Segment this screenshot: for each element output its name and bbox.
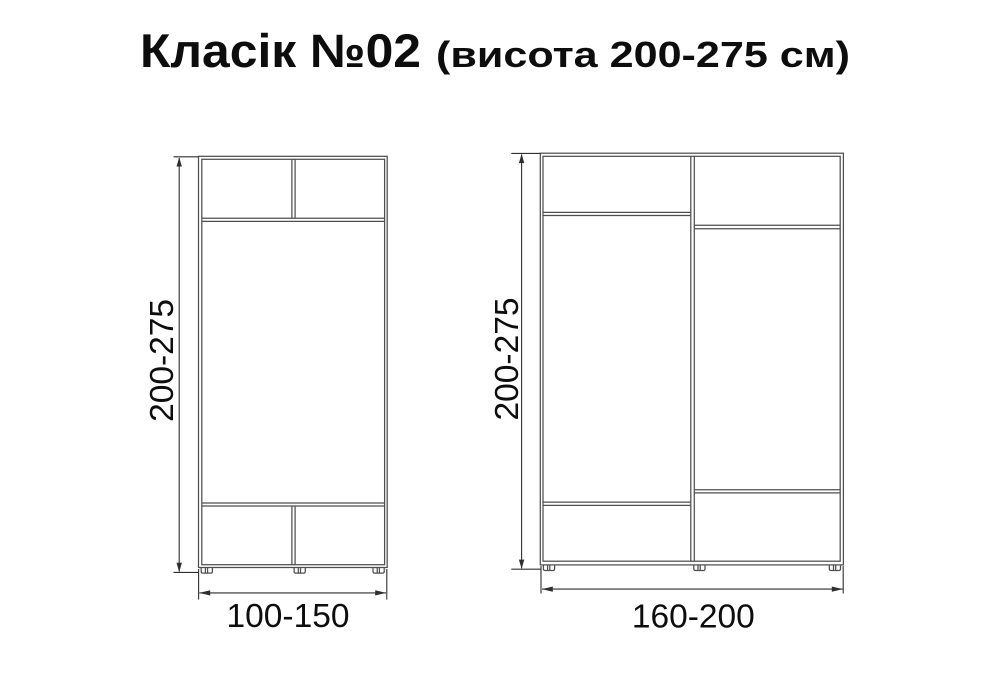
svg-text:Класік №02: Класік №02 [140, 24, 421, 77]
svg-text:160-200: 160-200 [632, 599, 755, 636]
svg-text:100-150: 100-150 [227, 598, 350, 635]
svg-text:200-275: 200-275 [144, 299, 181, 422]
svg-text:(висота 200-275 см): (висота 200-275 см) [436, 34, 850, 75]
svg-text:200-275: 200-275 [489, 298, 526, 421]
